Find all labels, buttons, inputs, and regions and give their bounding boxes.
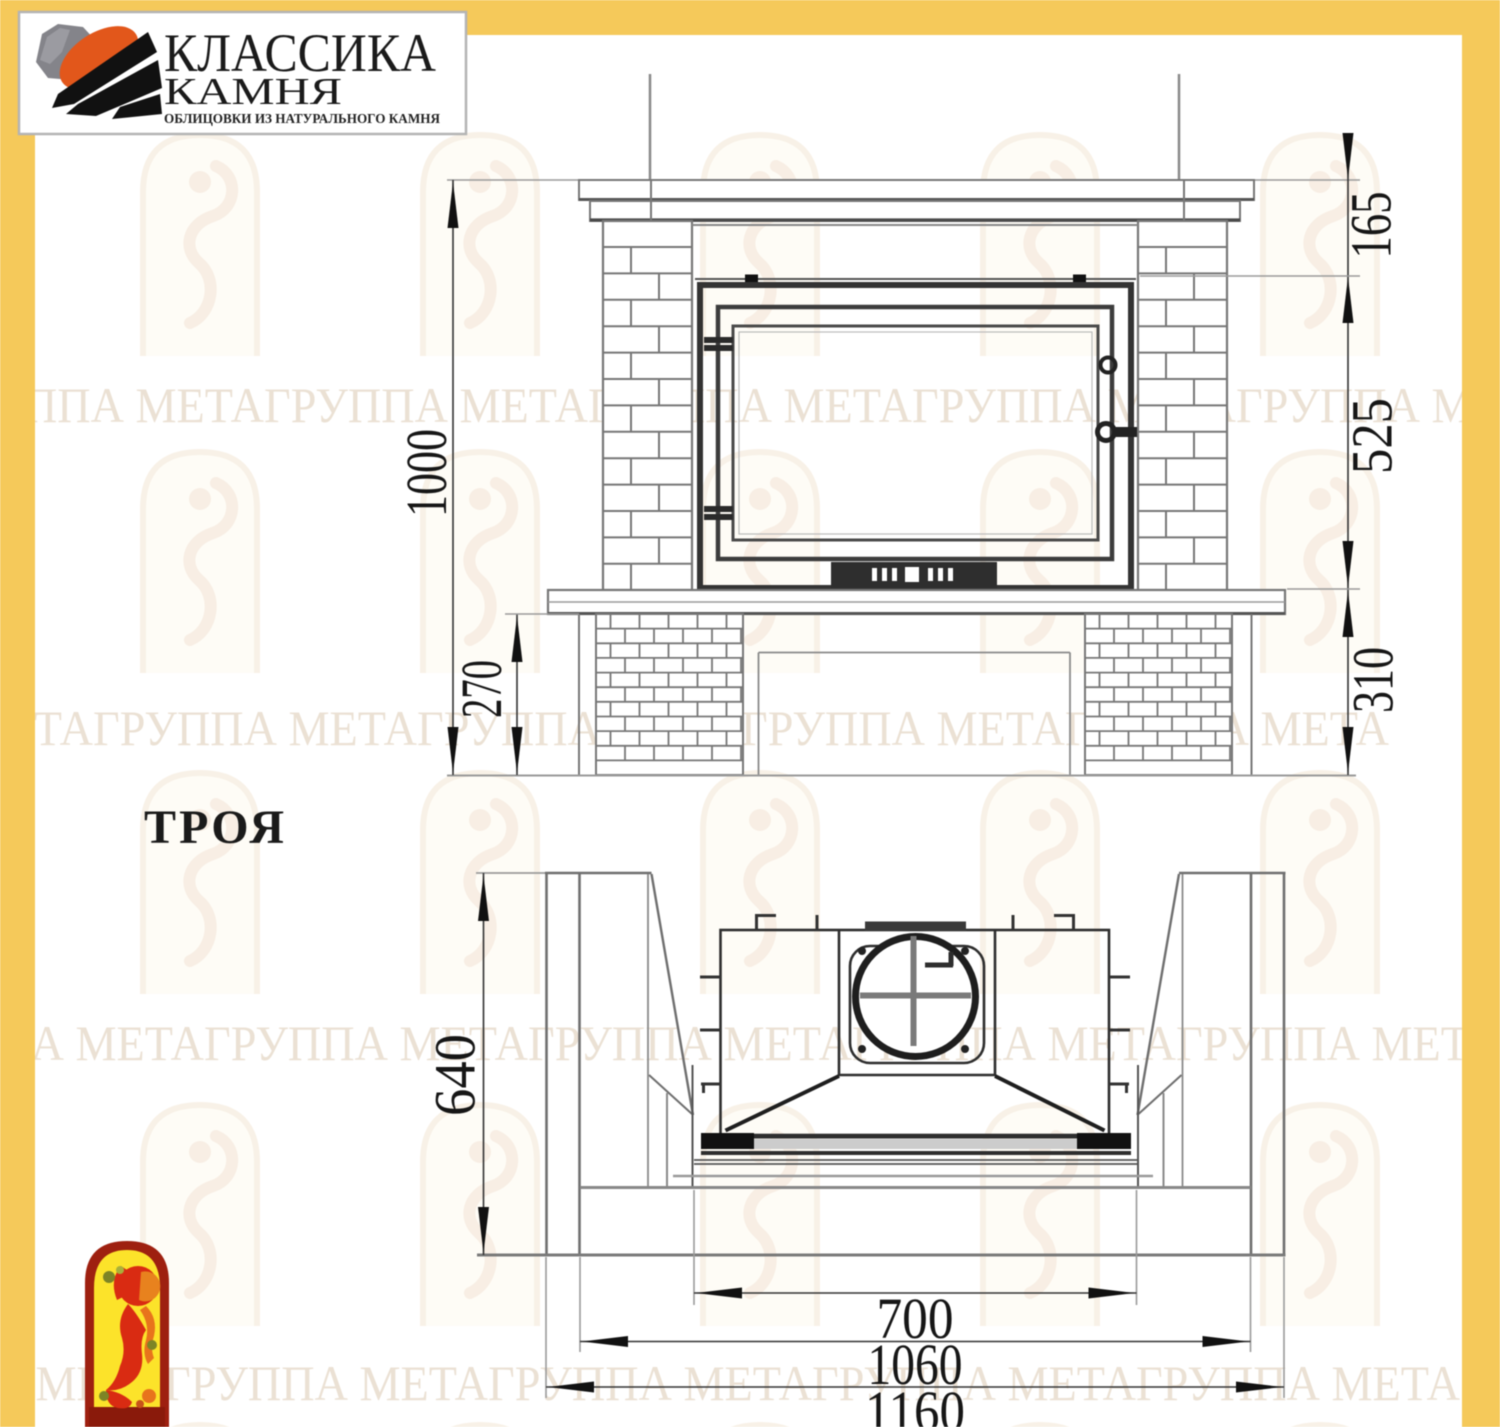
svg-text:640: 640 (423, 1034, 488, 1116)
svg-text:ОБЛИЦОВКИ ИЗ НАТУРАЛЬНОГО КАМН: ОБЛИЦОВКИ ИЗ НАТУРАЛЬНОГО КАМНЯ (164, 111, 440, 126)
svg-text:525: 525 (1340, 398, 1405, 474)
svg-text:ТРОЯ: ТРОЯ (144, 801, 284, 854)
svg-text:1000: 1000 (394, 429, 459, 517)
svg-text:310: 310 (1341, 647, 1406, 713)
svg-text:270: 270 (449, 660, 514, 718)
svg-text:ГРУППА МЕТАГРУППА МЕТАГРУППА М: ГРУППА МЕТАГРУППА МЕТАГРУППА МЕТАГРУППА … (0, 1015, 1500, 1071)
svg-text:1160: 1160 (865, 1379, 965, 1427)
svg-text:165: 165 (1339, 192, 1404, 259)
svg-text:КАМНЯ: КАМНЯ (164, 71, 342, 113)
svg-text:ГРУППА МЕТАГРУППА МЕТАГРУППА М: ГРУППА МЕТАГРУППА МЕТАГРУППА МЕТАГРУППА … (0, 377, 1500, 433)
